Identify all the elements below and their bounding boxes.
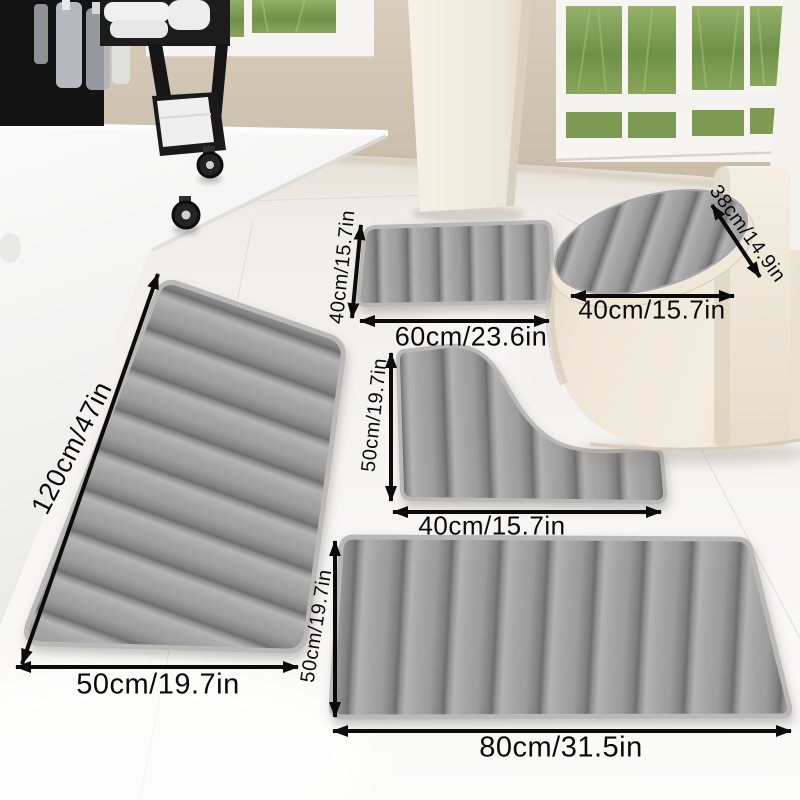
large-mat-width-label: 80cm/31.5in <box>479 732 643 765</box>
towel-folded <box>157 97 214 147</box>
lid-width-label: 40cm/15.7in <box>578 295 725 326</box>
contour-width-label: 40cm/15.7in <box>418 511 565 542</box>
caster-hub <box>206 161 214 169</box>
right-window-lower-pane <box>692 110 744 136</box>
small-mat-length-label: 60cm/23.6in <box>395 322 548 353</box>
right-window <box>556 0 790 162</box>
right-window-lower-pane <box>566 112 622 138</box>
right-window-pane <box>628 6 676 94</box>
right-window-pane <box>566 6 622 94</box>
large-bath-mat <box>331 537 789 717</box>
small-bath-mat <box>358 222 553 305</box>
right-window-lower-pane <box>628 112 676 138</box>
pedestal-sink <box>408 0 532 223</box>
caster-hub <box>182 211 191 220</box>
runner-width-label: 50cm/19.7in <box>76 669 240 702</box>
bathtub-drain-knob <box>0 233 21 263</box>
product-image: 120cm/47in 50cm/19.7in 40cm/15.7in 60cm/… <box>0 0 800 800</box>
